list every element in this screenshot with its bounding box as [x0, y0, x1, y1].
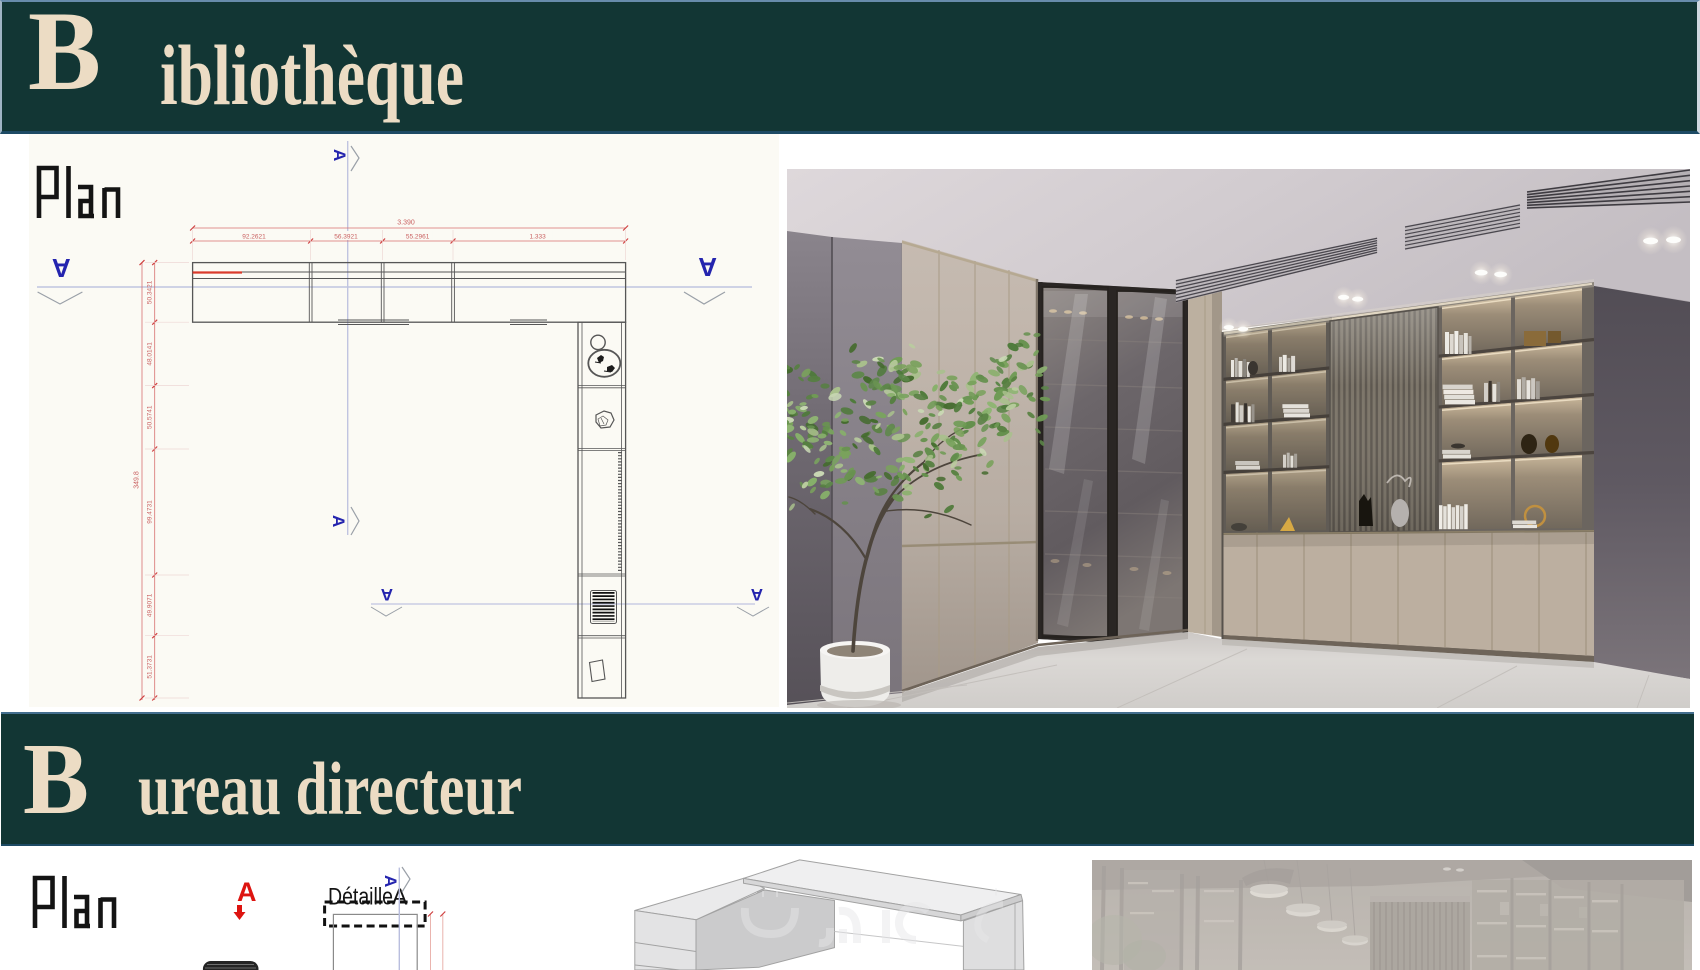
- svg-text:B: B: [23, 723, 89, 836]
- svg-text:A: A: [751, 585, 763, 604]
- svg-text:A: A: [237, 877, 257, 907]
- svg-text:A: A: [329, 515, 348, 527]
- svg-text:A: A: [330, 149, 349, 161]
- svg-text:A: A: [381, 875, 400, 887]
- svg-text:50.5741: 50.5741: [147, 405, 154, 429]
- svg-text:349.8: 349.8: [134, 471, 141, 489]
- svg-text:Détaille: Détaille: [328, 884, 393, 911]
- svg-text:56.3921: 56.3921: [334, 234, 358, 241]
- svg-text:A: A: [392, 884, 408, 910]
- svg-text:A: A: [52, 253, 71, 283]
- svg-text:A: A: [698, 252, 717, 282]
- svg-text:1.333: 1.333: [529, 234, 546, 241]
- svg-text:ibliothèque: ibliothèque: [160, 27, 464, 123]
- svg-text:B: B: [28, 2, 101, 114]
- svg-text:99.4731: 99.4731: [147, 500, 154, 524]
- svg-text:48.0141: 48.0141: [147, 342, 154, 366]
- svg-text:A: A: [381, 585, 393, 604]
- svg-text:51.3731: 51.3731: [147, 655, 154, 679]
- svg-text:49.9071: 49.9071: [147, 593, 154, 617]
- svg-text:ureau directeur: ureau directeur: [138, 748, 522, 831]
- svg-text:50.3421: 50.3421: [147, 280, 154, 304]
- svg-text:3.390: 3.390: [397, 220, 415, 227]
- svg-text:92.2621: 92.2621: [242, 234, 266, 241]
- svg-text:55.2961: 55.2961: [406, 234, 430, 241]
